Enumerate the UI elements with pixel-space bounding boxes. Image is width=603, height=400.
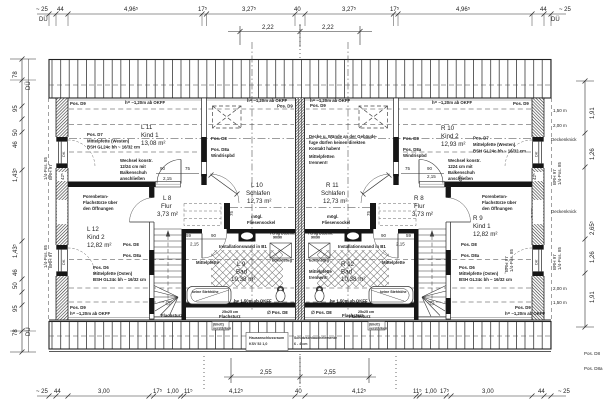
- svg-text:trennen!!: trennen!!: [309, 275, 328, 280]
- svg-text:46: 46: [13, 269, 19, 276]
- svg-text:anschließen: anschließen: [448, 176, 473, 181]
- svg-text:anschließen: anschließen: [120, 176, 145, 181]
- svg-text:DK: DK: [61, 259, 66, 265]
- svg-text:Pos. D9: Pos. D9: [277, 104, 293, 109]
- svg-text:trennen!!: trennen!!: [309, 160, 328, 165]
- svg-text:Flachsturz: Flachsturz: [161, 313, 183, 318]
- svg-text:Mittelpfette (Westen): Mittelpfette (Westen): [473, 142, 516, 147]
- svg-text:2,55: 2,55: [260, 370, 272, 376]
- svg-text:2,22: 2,22: [262, 25, 274, 31]
- svg-text:BSH GL24c bh ~ 16/32 cm: BSH GL24c bh ~ 16/32 cm: [93, 277, 146, 282]
- svg-text:Pos. D7: Pos. D7: [473, 136, 489, 141]
- svg-text:Mittelpfetten: Mittelpfetten: [309, 154, 335, 159]
- svg-text:verstärken: verstärken: [369, 327, 387, 331]
- svg-text:Mittelpfette: Mittelpfette: [196, 260, 220, 265]
- svg-text:~ 25: ~ 25: [36, 389, 49, 395]
- svg-text:R 8: R 8: [414, 195, 424, 202]
- svg-text:Mittelpfette: Mittelpfette: [309, 269, 333, 274]
- svg-text:1,26: 1,26: [590, 251, 596, 263]
- svg-text:50: 50: [13, 282, 19, 289]
- svg-text:Pos. D8: Pos. D8: [211, 136, 227, 141]
- svg-text:DÜ: DÜ: [39, 16, 48, 23]
- svg-text:BSH GL24c bh ~ 16/32 cm: BSH GL24c bh ~ 16/32 cm: [473, 149, 526, 154]
- svg-text:keine Stehhöhe: keine Stehhöhe: [380, 290, 407, 294]
- svg-text:1,00: 1,00: [167, 389, 179, 395]
- svg-text:6 - 4 cm: 6 - 4 cm: [294, 342, 307, 346]
- svg-text:mögl.: mögl.: [251, 214, 262, 219]
- svg-text:BSH GL24c bh ~ 16/32 cm: BSH GL24c bh ~ 16/32 cm: [87, 145, 140, 150]
- svg-text:Pos. D8: Pos. D8: [584, 351, 601, 356]
- svg-text:DÜ: DÜ: [551, 16, 560, 23]
- svg-text:1,50 m: 1,50 m: [553, 300, 567, 305]
- svg-text:12/24 cm mit: 12/24 cm mit: [120, 164, 146, 169]
- svg-text:44: 44: [538, 389, 545, 395]
- svg-text:Deckenknick: Deckenknick: [551, 137, 577, 142]
- svg-text:Mittelpfette: Mittelpfette: [382, 260, 406, 265]
- svg-text:1,50 m: 1,50 m: [553, 108, 567, 113]
- svg-text:Windrispbd: Windrispbd: [211, 153, 235, 158]
- svg-text:h= ~1,20m ab OKFF: h= ~1,20m ab OKFF: [505, 311, 545, 316]
- svg-text:Flur: Flur: [414, 203, 425, 210]
- svg-text:verstärken: verstärken: [213, 327, 231, 331]
- svg-text:90: 90: [381, 233, 387, 238]
- svg-text:2,15: 2,15: [163, 176, 172, 181]
- svg-text:mögl.: mögl.: [327, 214, 338, 219]
- svg-text:Bad: Bad: [341, 269, 353, 276]
- svg-text:Pos. D8a: Pos. D8a: [123, 253, 142, 258]
- svg-text:h= ~1,20m ab OKFF: h= ~1,20m ab OKFF: [247, 98, 287, 103]
- svg-text:Balkenschuh: Balkenschuh: [120, 170, 147, 175]
- svg-text:50: 50: [13, 129, 19, 136]
- svg-text:Kind 1: Kind 1: [473, 223, 491, 230]
- svg-text:h= 1,50m ab OKFF: h= 1,50m ab OKFF: [234, 299, 272, 304]
- svg-text:Pos. D8a: Pos. D8a: [461, 253, 480, 258]
- svg-text:∅ Pos. D8: ∅ Pos. D8: [267, 310, 288, 315]
- svg-text:Pos. D8a: Pos. D8a: [211, 147, 230, 152]
- svg-text:Fliesensockel: Fliesensockel: [247, 220, 275, 225]
- svg-text:12,73 m²: 12,73 m²: [247, 198, 271, 205]
- svg-text:Flachsturz: Flachsturz: [349, 314, 371, 319]
- svg-text:90/90: 90/90: [273, 236, 282, 240]
- svg-text:59: 59: [406, 233, 412, 238]
- svg-text:95: 95: [13, 105, 19, 112]
- svg-text:75: 75: [405, 166, 411, 171]
- svg-text:Pos. D8a: Pos. D8a: [403, 147, 422, 152]
- svg-text:1,00: 1,00: [425, 389, 437, 395]
- svg-text:Mittelpfette (Osten): Mittelpfette (Osten): [93, 271, 133, 276]
- svg-text:90/90: 90/90: [311, 236, 320, 240]
- svg-text:Windrispbd: Windrispbd: [403, 153, 427, 158]
- svg-text:Flachsturz: Flachsturz: [219, 314, 241, 319]
- svg-text:25x25 cm: 25x25 cm: [358, 310, 374, 314]
- svg-text:Pos. D9: Pos. D9: [70, 101, 86, 106]
- svg-text:40: 40: [294, 7, 301, 13]
- svg-text:12,82 m²: 12,82 m²: [473, 231, 497, 238]
- svg-text:Flachstürze über: Flachstürze über: [482, 200, 517, 205]
- svg-text:59: 59: [186, 233, 192, 238]
- svg-text:2,00 m: 2,00 m: [553, 286, 567, 291]
- svg-text:Wechsel konstr.: Wechsel konstr.: [448, 158, 481, 163]
- svg-text:h= ~1,20m ab OKFF: h= ~1,20m ab OKFF: [70, 311, 110, 316]
- svg-text:Pos. D9: Pos. D9: [515, 305, 531, 310]
- svg-text:25x25 cm: 25x25 cm: [222, 310, 238, 314]
- svg-text:3,73 m²: 3,73 m²: [412, 211, 433, 218]
- svg-text:Mittelpfette (Westen): Mittelpfette (Westen): [87, 139, 130, 144]
- svg-text:den Öffnungen: den Öffnungen: [482, 206, 513, 211]
- svg-text:Wechsel konstr.: Wechsel konstr.: [120, 158, 153, 163]
- svg-text:h= 1,50m ab OKFF: h= 1,50m ab OKFF: [330, 299, 368, 304]
- svg-text:12,82 m²: 12,82 m²: [87, 242, 111, 249]
- svg-text:R 12: R 12: [341, 261, 355, 268]
- svg-text:Deckenknick: Deckenknick: [551, 209, 577, 214]
- svg-text:Kind 2: Kind 2: [441, 133, 459, 140]
- svg-text:DK: DK: [61, 151, 66, 157]
- svg-text:44: 44: [54, 389, 61, 395]
- svg-text:Flur: Flur: [161, 203, 172, 210]
- svg-text:Kind 2: Kind 2: [87, 234, 105, 241]
- svg-text:fuge dürfen keinen direkten: fuge dürfen keinen direkten: [309, 140, 366, 145]
- svg-text:12,73 m²: 12,73 m²: [323, 198, 347, 205]
- svg-text:2,55: 2,55: [324, 370, 336, 376]
- svg-text:~ 25: ~ 25: [558, 389, 571, 395]
- svg-text:h= ~1,20m ab OKFF: h= ~1,20m ab OKFF: [125, 100, 165, 105]
- svg-text:Pos. D6: Pos. D6: [93, 265, 109, 270]
- svg-text:90: 90: [427, 166, 433, 171]
- svg-text:Pos. D9: Pos. D9: [310, 103, 326, 108]
- svg-text:L 9: L 9: [237, 261, 246, 268]
- svg-text:78: 78: [13, 71, 19, 78]
- svg-text:Pos. D8a: Pos. D8a: [584, 366, 603, 371]
- svg-text:Porenbeton-: Porenbeton-: [83, 194, 109, 199]
- svg-text:Pos. D7: Pos. D7: [87, 132, 103, 137]
- svg-text:1/4-Pos. 85: 1/4-Pos. 85: [557, 246, 562, 270]
- svg-text:1224 cm mit: 1224 cm mit: [448, 164, 473, 169]
- svg-text:44: 44: [57, 7, 64, 13]
- svg-text:75: 75: [185, 166, 191, 171]
- svg-text:Pos. D9: Pos. D9: [513, 101, 529, 106]
- svg-text:BSH GL24c bh ~ 16/32 cm: BSH GL24c bh ~ 16/32 cm: [459, 277, 512, 282]
- svg-text:75: 75: [366, 210, 371, 216]
- svg-text:KSV 52 1,0: KSV 52 1,0: [249, 342, 267, 346]
- svg-text:Eckeinstieg: Eckeinstieg: [309, 259, 329, 263]
- svg-text:Mittelpfette (Osten): Mittelpfette (Osten): [459, 271, 499, 276]
- svg-text:R 10: R 10: [441, 125, 455, 132]
- svg-text:Installationswand in B1: Installationswand in B1: [219, 244, 267, 249]
- svg-text:Schutzschlauchelemente: Schutzschlauchelemente: [294, 336, 337, 340]
- svg-text:Decke u. Wände an der Gebäude-: Decke u. Wände an der Gebäude-: [309, 134, 378, 139]
- svg-text:Schlafen: Schlafen: [246, 190, 271, 197]
- svg-text:1,91: 1,91: [590, 107, 596, 119]
- svg-text:Pos. D6: Pos. D6: [459, 265, 475, 270]
- svg-text:40: 40: [295, 389, 302, 395]
- svg-text:1/4-Pos. 85: 1/4-Pos. 85: [557, 161, 562, 185]
- svg-text:Hausanschlussraum: Hausanschlussraum: [249, 336, 284, 340]
- svg-text:L 10: L 10: [251, 182, 263, 189]
- svg-text:L 12: L 12: [87, 226, 99, 233]
- svg-text:Porenbeton-: Porenbeton-: [482, 194, 508, 199]
- svg-text:Pos. D8: Pos. D8: [461, 242, 477, 247]
- svg-text:Balkenschuh: Balkenschuh: [448, 170, 475, 175]
- svg-text:Pos. D8: Pos. D8: [403, 136, 419, 141]
- svg-text:10,38 m²: 10,38 m²: [231, 276, 255, 283]
- svg-text:2,00 m: 2,00 m: [553, 123, 567, 128]
- svg-text:75: 75: [229, 210, 234, 216]
- svg-text:3,73 m²: 3,73 m²: [157, 211, 178, 218]
- svg-text:h= ~1,20m ab OKFF: h= ~1,20m ab OKFF: [432, 100, 472, 105]
- svg-text:DÜ: DÜ: [25, 81, 32, 90]
- svg-text:DÜ: DÜ: [25, 327, 32, 336]
- svg-text:2,15: 2,15: [396, 242, 405, 247]
- svg-text:1,26: 1,26: [590, 148, 596, 160]
- svg-text:44: 44: [540, 7, 547, 13]
- svg-text:46: 46: [13, 141, 19, 148]
- svg-text:Pos. D9: Pos. D9: [70, 305, 86, 310]
- svg-text:95: 95: [13, 305, 19, 312]
- svg-text:1,91: 1,91: [590, 291, 596, 303]
- svg-text:3,00: 3,00: [98, 389, 110, 395]
- svg-text:L 11: L 11: [141, 124, 153, 131]
- svg-text:~ 25: ~ 25: [559, 7, 572, 13]
- svg-text:L 8: L 8: [163, 195, 172, 202]
- svg-text:10,38 m²: 10,38 m²: [341, 276, 365, 283]
- svg-text:Pos. D8: Pos. D8: [123, 242, 139, 247]
- svg-text:78: 78: [13, 329, 19, 336]
- svg-text:Flachstürze über: Flachstürze über: [83, 200, 118, 205]
- svg-text:Kind 1: Kind 1: [141, 132, 159, 139]
- svg-text:Eckeinstieg: Eckeinstieg: [272, 259, 292, 263]
- svg-text:90: 90: [211, 233, 217, 238]
- svg-text:3,00: 3,00: [482, 389, 494, 395]
- svg-text:1/4-Pos. 85: 1/4-Pos. 85: [509, 248, 514, 272]
- svg-text:Fliesensockel: Fliesensockel: [322, 220, 350, 225]
- svg-text:2,22: 2,22: [322, 25, 334, 31]
- svg-text:Kontakt haben!: Kontakt haben!: [309, 146, 341, 151]
- svg-text:den Öffnungen: den Öffnungen: [83, 206, 114, 211]
- svg-text:90: 90: [160, 166, 166, 171]
- svg-text:2,15: 2,15: [190, 242, 199, 247]
- svg-text:keine Stehhöhe: keine Stehhöhe: [192, 290, 219, 294]
- svg-text:Schlafen: Schlafen: [321, 190, 346, 197]
- svg-text:R 11: R 11: [326, 182, 339, 189]
- svg-text:R 9: R 9: [473, 215, 483, 222]
- svg-text:~ 25: ~ 25: [36, 7, 49, 13]
- svg-text:13,08 m²: 13,08 m²: [141, 140, 165, 147]
- svg-text:Installationswand in B1: Installationswand in B1: [338, 244, 386, 249]
- svg-text:∅ Pos. D8: ∅ Pos. D8: [311, 310, 332, 315]
- svg-text:2,15: 2,15: [427, 174, 436, 179]
- svg-text:Bad: Bad: [236, 269, 248, 276]
- svg-text:12,93 m²: 12,93 m²: [441, 141, 465, 148]
